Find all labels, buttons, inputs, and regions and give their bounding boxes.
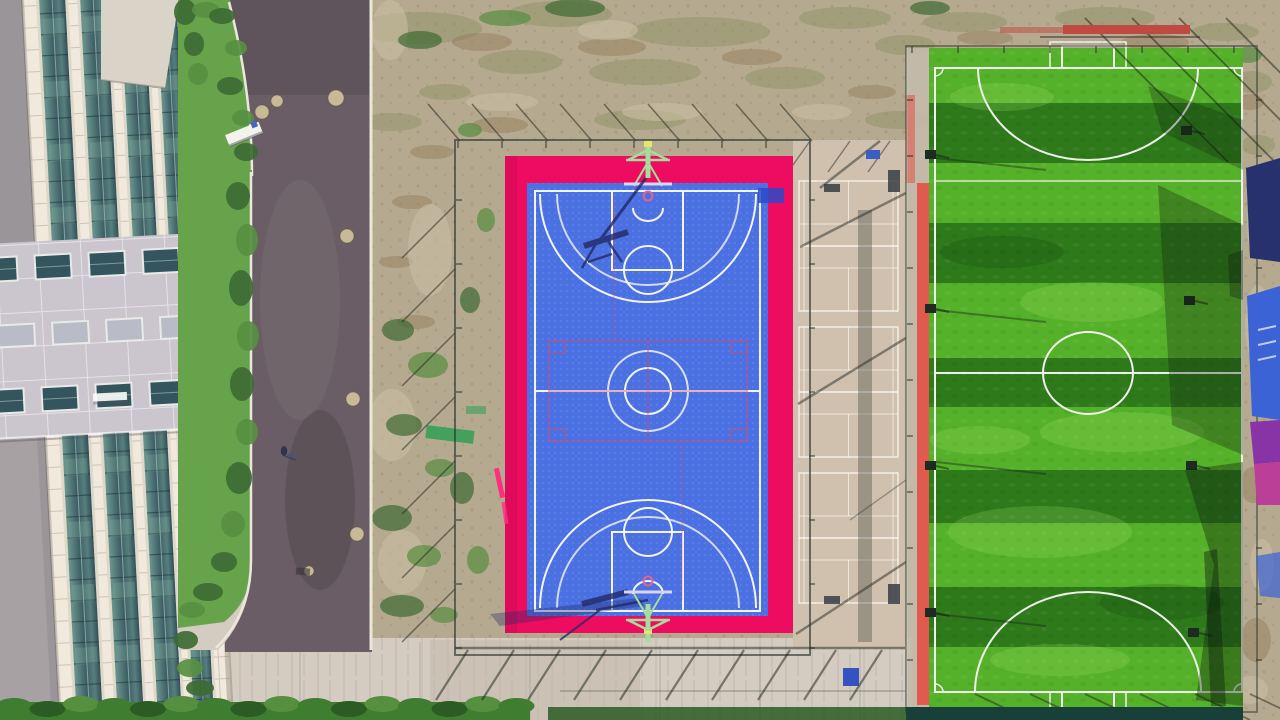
red-edge-stripe	[917, 183, 929, 705]
bench	[888, 584, 900, 604]
dirt-patch	[466, 93, 538, 111]
bench	[824, 596, 840, 604]
floodlight-head	[925, 608, 936, 617]
blue-mat	[758, 188, 784, 203]
dirt-patch	[372, 0, 408, 60]
hedge-bush	[398, 698, 434, 714]
hedge-bush	[130, 701, 166, 717]
bush	[236, 224, 258, 256]
grass-mottle	[990, 644, 1130, 676]
glass-pane	[90, 141, 113, 159]
hedge-bush	[432, 701, 468, 717]
hedge-bush	[97, 698, 133, 714]
vegetation-clump	[450, 472, 474, 504]
dirt-patch	[792, 104, 852, 120]
vegetation-clump	[425, 459, 455, 477]
bush	[237, 321, 259, 351]
window	[107, 319, 142, 341]
glass-pane	[153, 580, 174, 598]
bush	[217, 77, 243, 95]
dirt-patch	[722, 49, 782, 65]
manhole-cover	[350, 527, 364, 541]
window	[53, 322, 88, 344]
glass-pane	[45, 81, 68, 99]
hedge-bush	[30, 701, 66, 717]
dirt-patch	[848, 85, 896, 99]
grass-mottle	[930, 426, 1030, 454]
dirt-patch	[622, 103, 702, 121]
manhole-cover	[271, 95, 283, 107]
vegetation-clump	[479, 10, 531, 26]
hedge-bush	[499, 698, 535, 714]
grass-mottle	[1100, 584, 1224, 620]
manhole-cover	[340, 229, 354, 243]
manhole-cover	[346, 392, 360, 406]
hedge-bush	[331, 701, 367, 717]
glass-pane	[116, 645, 139, 663]
dirt-patch	[408, 204, 452, 296]
window	[0, 325, 34, 347]
dirt-patch	[478, 50, 562, 74]
aerial-photo-sports-complex	[0, 0, 1280, 720]
glass-pane	[156, 643, 177, 661]
vegetation-clump	[372, 505, 412, 531]
dirt-patch	[379, 256, 413, 268]
manhole-cover	[328, 90, 344, 106]
bush	[174, 0, 196, 25]
glass-pane	[106, 456, 129, 474]
badminton-strip	[788, 140, 906, 686]
bush	[226, 182, 250, 210]
dirt-patch	[578, 38, 646, 56]
hedge-bush	[63, 696, 99, 712]
floodlight-head	[1188, 628, 1199, 637]
bench	[824, 184, 840, 192]
glass-pane	[113, 582, 136, 600]
manhole-cover	[255, 105, 269, 119]
dirt-patch	[957, 31, 1013, 45]
bush	[184, 32, 204, 56]
dirt-patch	[589, 59, 701, 85]
glass-pane	[75, 647, 98, 665]
vegetation-clump	[910, 1, 950, 15]
glass-pane	[109, 519, 132, 537]
hedge-bush	[231, 701, 267, 717]
grass-mottle	[948, 506, 1132, 558]
bush	[211, 552, 237, 572]
vegetation-clump	[380, 595, 424, 617]
glass-pane	[52, 206, 75, 224]
dirt-patch	[745, 67, 825, 89]
bush	[177, 659, 203, 677]
glass-pane	[130, 139, 151, 157]
hedge-bush	[365, 696, 401, 712]
bench	[888, 170, 900, 192]
vegetation-clump	[477, 208, 495, 232]
dirt-patch	[410, 145, 454, 159]
bush	[234, 143, 258, 161]
dirt-patch	[452, 33, 512, 51]
dirt-patch	[578, 20, 638, 40]
bush	[226, 462, 252, 494]
bush	[236, 419, 258, 445]
bush	[186, 680, 214, 696]
dirt-patch	[923, 12, 1007, 32]
hedge-bush	[197, 698, 233, 714]
vegetation-clump	[458, 123, 482, 137]
bush	[193, 583, 223, 601]
grass-mottle	[940, 236, 1064, 268]
bush	[225, 40, 247, 56]
glass-pane	[93, 204, 116, 222]
scene-canvas	[0, 0, 1280, 720]
bush	[188, 63, 208, 85]
glass-pane	[72, 584, 95, 602]
floodlight-head	[925, 150, 936, 159]
bush	[229, 270, 253, 306]
dirt-patch	[419, 84, 471, 100]
glass-pane	[149, 517, 170, 535]
vegetation-clump	[398, 31, 442, 49]
dirt-patch	[799, 7, 891, 29]
vegetation-clump	[386, 414, 422, 436]
hedge-bush	[298, 698, 334, 714]
bush	[230, 367, 254, 401]
bush	[174, 631, 198, 649]
glass-pane	[146, 454, 167, 472]
bush	[221, 511, 245, 537]
hedge-bush	[264, 696, 300, 712]
floodlight-head	[925, 304, 936, 313]
dirt-patch	[1191, 23, 1259, 41]
floodlight-head	[925, 461, 936, 470]
dirt-patch	[1241, 618, 1271, 662]
vegetation-clump	[467, 546, 489, 574]
bush	[179, 602, 205, 618]
hedge-bush	[164, 696, 200, 712]
bench	[866, 150, 880, 159]
dirt-patch	[630, 17, 770, 47]
vegetation-clump	[382, 319, 414, 341]
soccer-field	[906, 18, 1280, 720]
vegetation-clump	[460, 287, 480, 313]
glass-pane	[65, 458, 88, 476]
grass-mottle	[950, 83, 1054, 111]
equipment-box	[843, 668, 859, 686]
glass-pane	[68, 521, 91, 539]
glass-pane	[133, 202, 154, 220]
grass-mottle	[1020, 282, 1164, 322]
glass-pane	[49, 143, 72, 161]
glass-pane	[42, 18, 65, 36]
pole-shadow	[858, 210, 872, 642]
bush	[209, 8, 235, 24]
